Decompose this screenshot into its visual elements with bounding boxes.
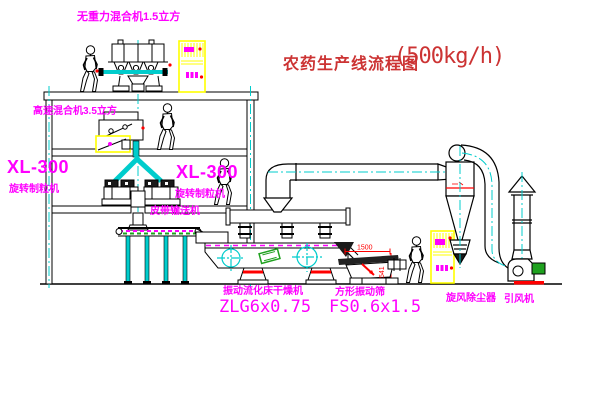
dryer-name-label: 振动流化床干燥机: [223, 287, 303, 297]
high-speed-mixer-label: 高速混合机3.5立方: [33, 107, 117, 117]
fan-label: 引风机: [504, 295, 534, 305]
process-flow-drawing: 1500 541: [0, 0, 600, 403]
dryer-model-label: ZLG6x0.75: [219, 299, 311, 316]
screen-model-label: FS0.6x1.5: [329, 299, 421, 316]
cyclone-label: 旋风除尘器: [446, 294, 496, 304]
control-cabinet-top: [179, 41, 205, 92]
control-cabinet-ground: [431, 231, 454, 283]
dryer-exhaust-duct: [264, 163, 452, 212]
granulator-name-label-mid: 旋转制粒机: [175, 190, 225, 200]
granulator-name-label-left: 旋转制粒机: [9, 185, 59, 195]
gravity-free-mixer: [95, 40, 171, 91]
screen-width-dimension: 1500: [357, 245, 373, 252]
gravity-mixer-label: 无重力混合机1.5立方: [77, 12, 180, 23]
worker-figure-roof: [81, 46, 98, 92]
induced-draft-fan: [508, 259, 545, 285]
worker-figure-floor3: [158, 104, 175, 150]
screen-height-dimension: 541: [379, 266, 386, 278]
belt-conveyor-label: 皮带输送机: [150, 207, 200, 217]
high-speed-mixer: [96, 112, 145, 157]
worker-figure-ground: [407, 237, 424, 283]
fluid-bed-dryer: [196, 208, 358, 284]
drawing-title-capacity: (500kg/h): [394, 44, 504, 69]
granulator-model-label-left: XL-300: [7, 158, 69, 176]
granulator-model-label-mid: XL-300: [176, 163, 238, 181]
